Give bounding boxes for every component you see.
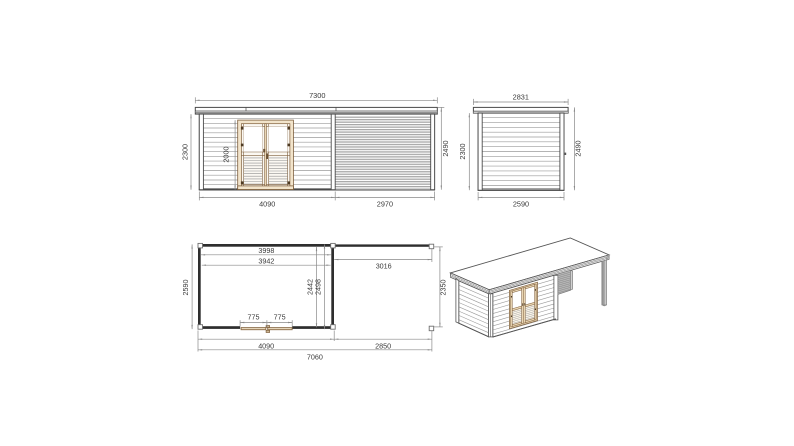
svg-text:775: 775: [248, 313, 260, 322]
svg-text:4090: 4090: [258, 341, 274, 350]
svg-text:2490: 2490: [441, 140, 450, 156]
svg-text:2350: 2350: [439, 280, 448, 296]
svg-text:2970: 2970: [377, 200, 393, 209]
svg-text:2590: 2590: [513, 200, 529, 209]
svg-text:4090: 4090: [259, 200, 275, 209]
svg-text:2498: 2498: [314, 279, 323, 295]
svg-text:2300: 2300: [458, 143, 467, 159]
svg-text:2000: 2000: [222, 146, 231, 162]
svg-text:3016: 3016: [376, 262, 392, 271]
svg-text:2490: 2490: [573, 140, 582, 156]
svg-text:2300: 2300: [180, 144, 189, 160]
svg-text:2590: 2590: [181, 280, 190, 296]
svg-text:2850: 2850: [375, 341, 391, 350]
svg-text:3998: 3998: [258, 246, 274, 255]
svg-text:775: 775: [274, 313, 286, 322]
svg-text:7300: 7300: [309, 91, 325, 100]
svg-text:2831: 2831: [513, 92, 529, 101]
svg-text:7060: 7060: [307, 352, 323, 361]
svg-text:3942: 3942: [258, 257, 274, 266]
